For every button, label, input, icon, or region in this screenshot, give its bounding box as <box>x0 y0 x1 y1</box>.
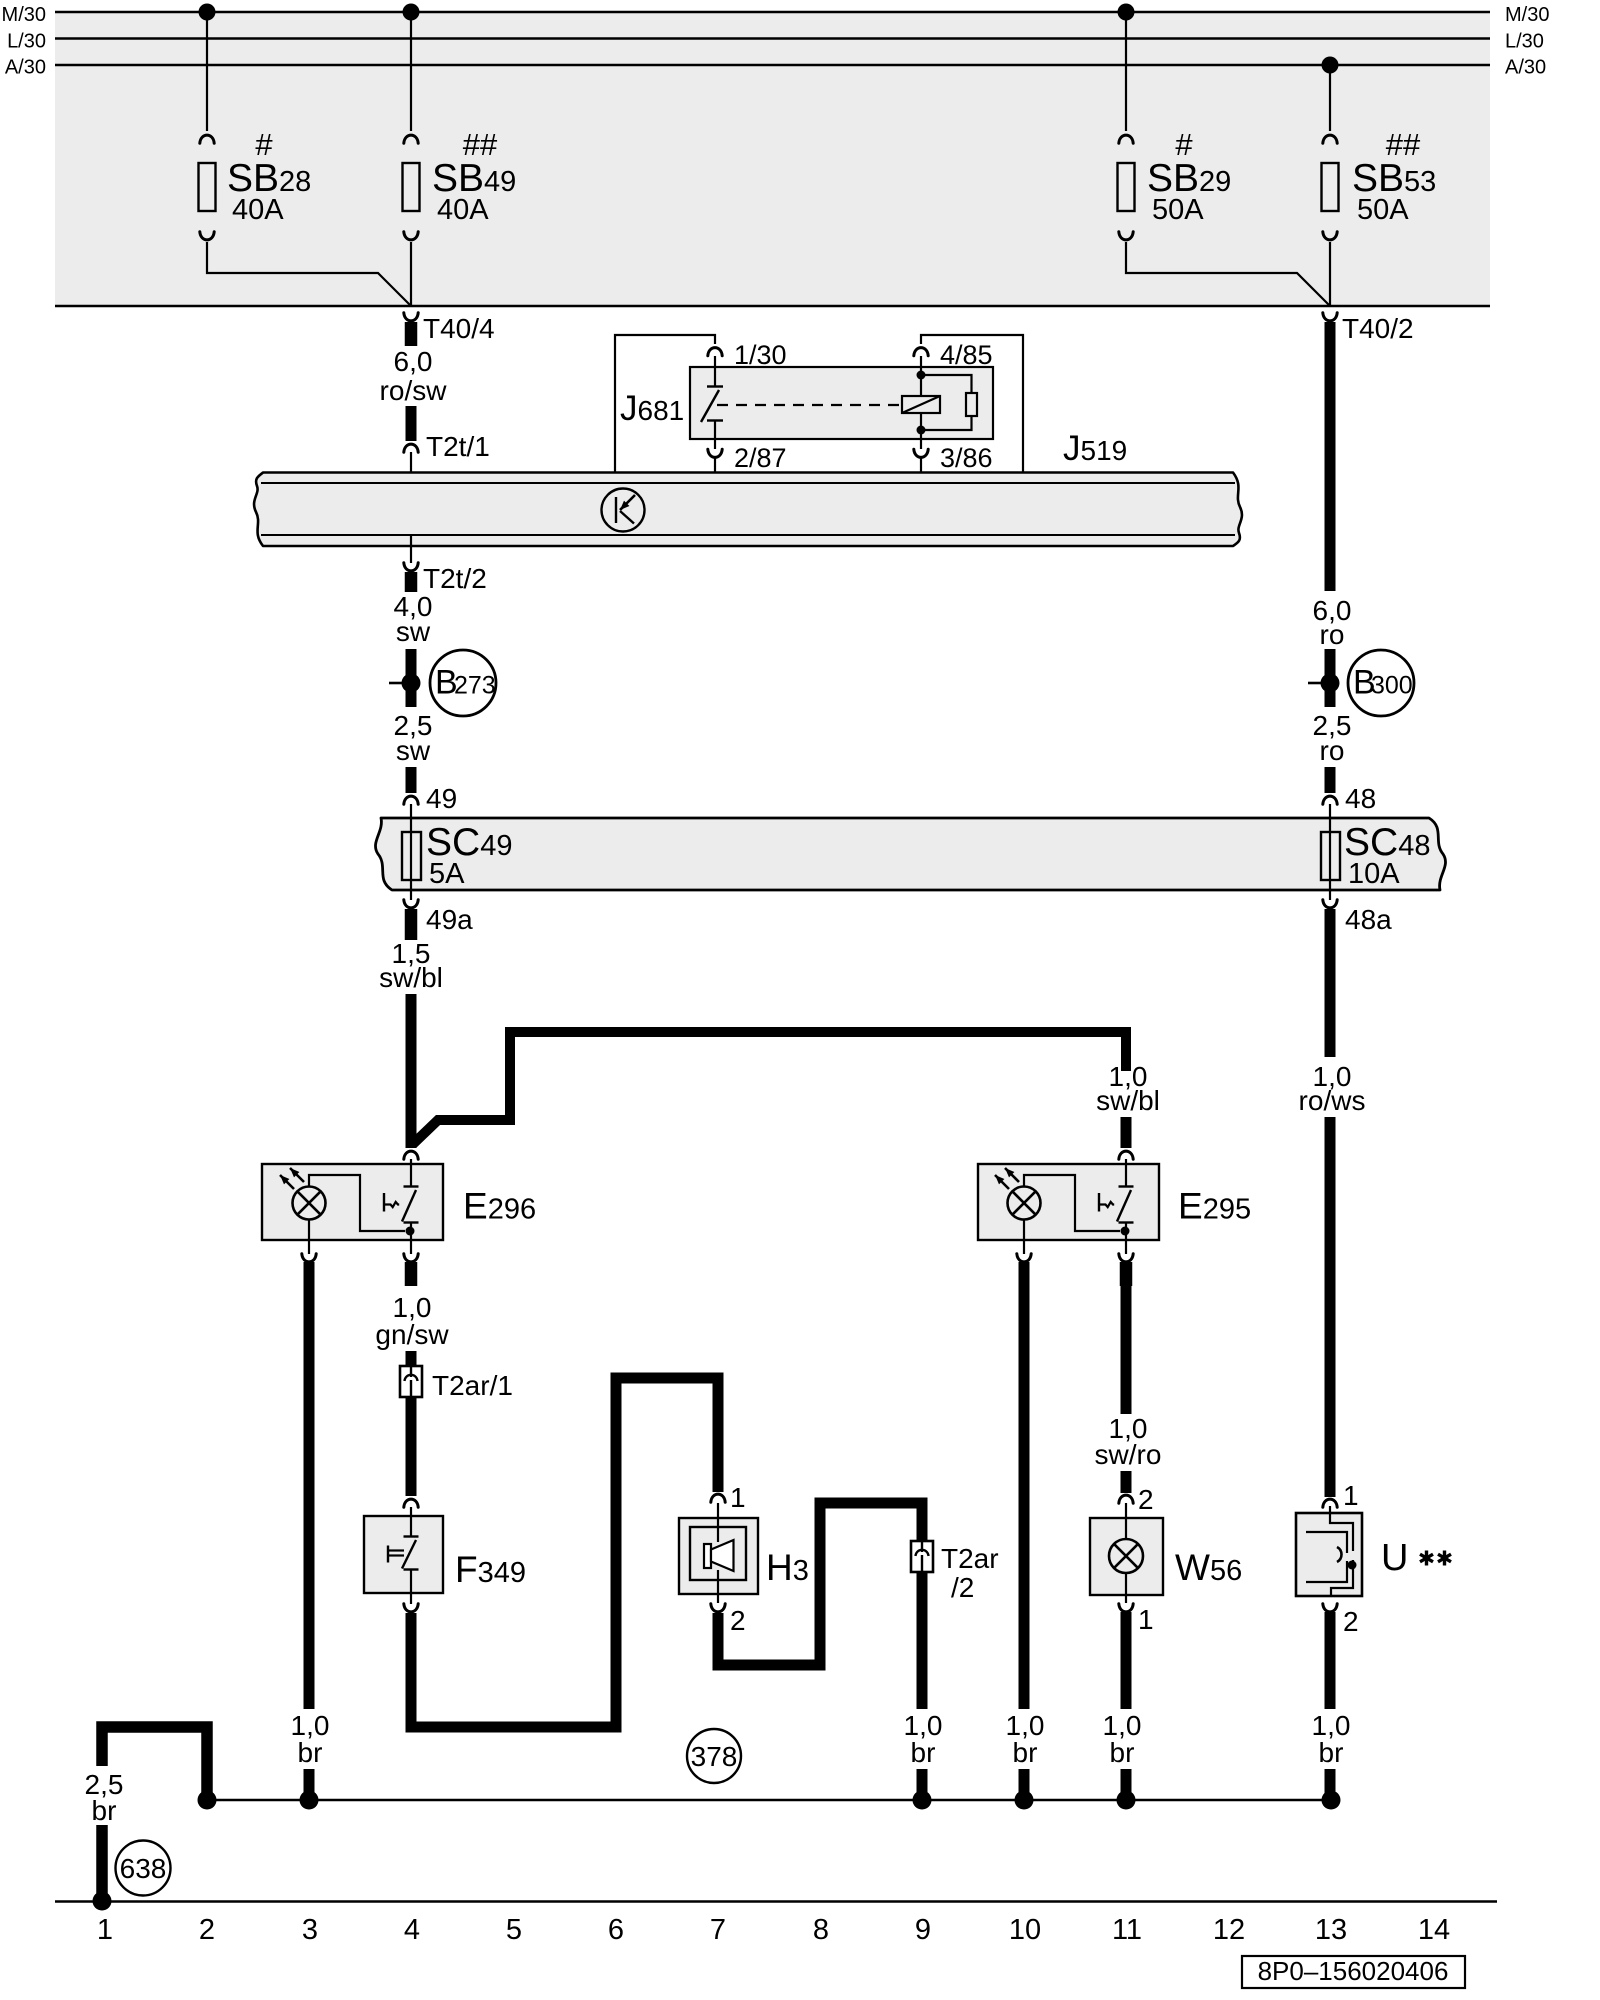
svg-text:T2ar: T2ar <box>941 1543 999 1574</box>
svg-text:1/30: 1/30 <box>734 340 787 370</box>
svg-text:ro/ws: ro/ws <box>1299 1085 1366 1116</box>
svg-text:13: 13 <box>1315 1914 1347 1946</box>
svg-text:sw/bl: sw/bl <box>379 962 443 993</box>
svg-text:br: br <box>911 1737 936 1768</box>
svg-text:T40/2: T40/2 <box>1342 313 1414 344</box>
svg-text:12: 12 <box>1213 1914 1245 1946</box>
svg-text:11: 11 <box>1112 1914 1142 1946</box>
svg-text:300: 300 <box>1371 672 1413 700</box>
svg-text:/2: /2 <box>951 1572 974 1603</box>
svg-text:M/30: M/30 <box>2 4 46 26</box>
svg-text:6: 6 <box>608 1914 624 1946</box>
svg-text:10: 10 <box>1009 1914 1041 1946</box>
svg-text:4/85: 4/85 <box>940 340 993 370</box>
svg-text:sw: sw <box>396 735 431 766</box>
svg-text:378: 378 <box>691 1741 738 1772</box>
svg-text:U: U <box>1381 1537 1408 1579</box>
svg-text:br: br <box>1319 1737 1344 1768</box>
svg-text:10A: 10A <box>1348 858 1400 890</box>
svg-text:40A: 40A <box>232 194 284 226</box>
svg-text:M/30: M/30 <box>1505 4 1549 26</box>
svg-text:sw/bl: sw/bl <box>1096 1085 1160 1116</box>
svg-text:2: 2 <box>1343 1606 1359 1637</box>
svg-text:A/30: A/30 <box>1505 57 1546 79</box>
svg-text:2: 2 <box>730 1605 746 1636</box>
svg-text:sw/ro: sw/ro <box>1095 1439 1162 1470</box>
svg-text:L/30: L/30 <box>7 31 46 53</box>
svg-text:3/86: 3/86 <box>940 443 993 473</box>
svg-text:8P0–156020406: 8P0–156020406 <box>1258 1956 1449 1986</box>
svg-text:5: 5 <box>506 1914 522 1946</box>
svg-text:ro: ro <box>1320 735 1345 766</box>
svg-text:4: 4 <box>404 1914 420 1946</box>
svg-text:1: 1 <box>730 1482 746 1513</box>
svg-text:49a: 49a <box>426 904 473 935</box>
svg-text:1: 1 <box>1138 1604 1154 1635</box>
svg-text:J681: J681 <box>620 389 684 428</box>
svg-text:273: 273 <box>454 672 496 700</box>
svg-text:ro: ro <box>1320 619 1345 650</box>
svg-text:##: ## <box>463 127 498 162</box>
svg-text:T2ar/1: T2ar/1 <box>432 1370 513 1401</box>
svg-text:2: 2 <box>199 1914 215 1946</box>
svg-text:49: 49 <box>426 783 457 814</box>
svg-text:gn/sw: gn/sw <box>375 1319 449 1350</box>
svg-text:##: ## <box>1386 127 1421 162</box>
svg-text:br: br <box>1110 1737 1135 1768</box>
svg-text:50A: 50A <box>1152 194 1204 226</box>
svg-text:#: # <box>1175 127 1193 162</box>
svg-text:ro/sw: ro/sw <box>380 375 448 406</box>
svg-text:T2t/1: T2t/1 <box>426 431 490 462</box>
svg-text:J519: J519 <box>1063 429 1127 468</box>
svg-text:br: br <box>298 1737 323 1768</box>
svg-text:40A: 40A <box>437 194 489 226</box>
svg-text:T40/4: T40/4 <box>423 313 495 344</box>
svg-text:638: 638 <box>120 1853 167 1884</box>
svg-text:sw: sw <box>396 616 431 647</box>
svg-text:14: 14 <box>1418 1914 1450 1946</box>
svg-text:48: 48 <box>1345 783 1376 814</box>
svg-text:1: 1 <box>1343 1480 1359 1511</box>
svg-text:L/30: L/30 <box>1505 31 1544 53</box>
svg-text:6,0: 6,0 <box>394 346 433 377</box>
svg-text:3: 3 <box>302 1914 318 1946</box>
svg-text:T2t/2: T2t/2 <box>423 563 487 594</box>
svg-text:A/30: A/30 <box>5 57 46 79</box>
svg-text:br: br <box>92 1795 117 1826</box>
svg-text:#: # <box>255 127 273 162</box>
svg-text:50A: 50A <box>1357 194 1409 226</box>
svg-text:48a: 48a <box>1345 904 1392 935</box>
svg-text:2: 2 <box>1138 1484 1154 1515</box>
svg-text:br: br <box>1013 1737 1038 1768</box>
svg-text:8: 8 <box>813 1914 829 1946</box>
svg-text:1: 1 <box>97 1914 113 1946</box>
svg-text:9: 9 <box>915 1914 931 1946</box>
svg-text:2/87: 2/87 <box>734 443 787 473</box>
svg-text:7: 7 <box>710 1914 726 1946</box>
svg-text:5A: 5A <box>429 858 465 890</box>
